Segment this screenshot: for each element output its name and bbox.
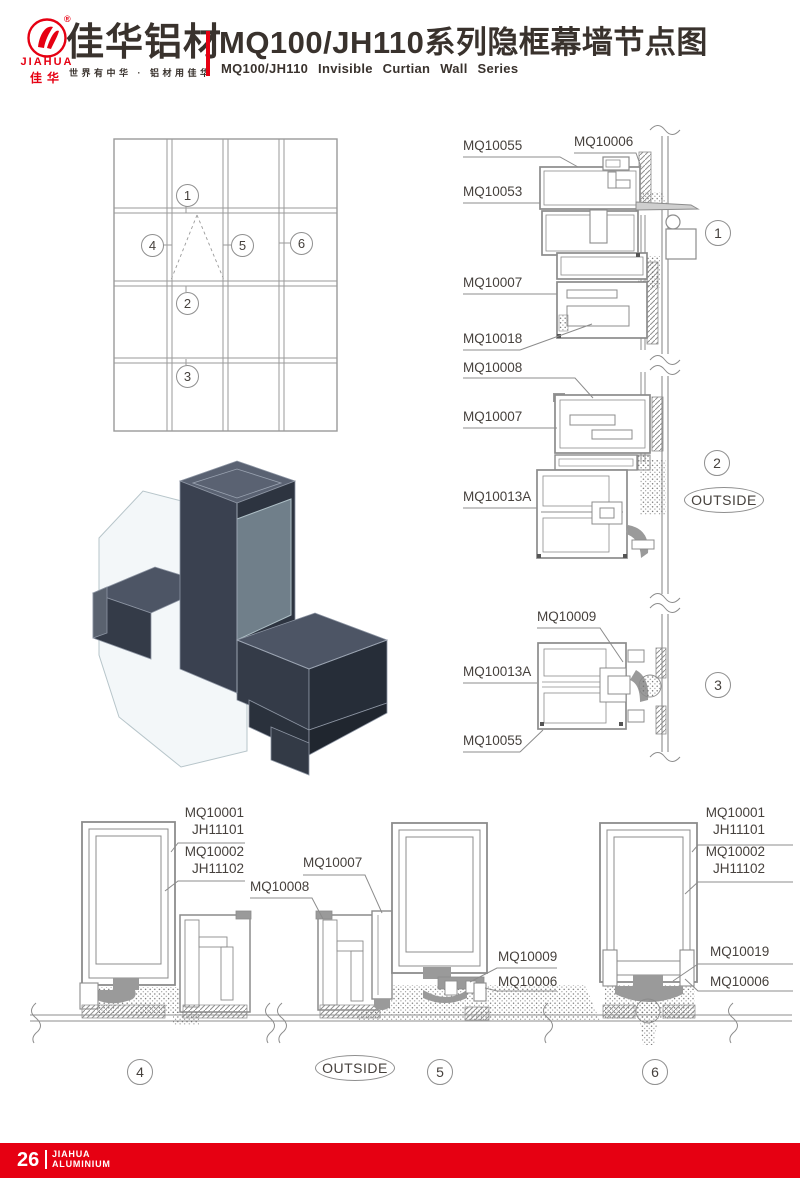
- section-callout-4-label: 4: [136, 1064, 144, 1080]
- page-subtitle: MQ100/JH110 Invisible Curtian Wall Serie…: [221, 61, 518, 76]
- outside-label-right: OUTSIDE: [684, 487, 764, 513]
- part-label: JH11101: [699, 823, 765, 838]
- grid-callout-4: 4: [141, 234, 164, 257]
- grid-callout-6: 6: [290, 232, 313, 255]
- footer-brand-line1: JIAHUA: [52, 1149, 90, 1159]
- section-callout-1: 1: [705, 220, 731, 246]
- 3d-profile-render: [85, 443, 405, 783]
- part-label: JH11102: [178, 862, 244, 877]
- part-label: MQ10007: [303, 856, 362, 871]
- section-callout-2: 2: [704, 450, 730, 476]
- horizontal-section-details: [25, 795, 800, 1095]
- grid-callout-3: 3: [176, 365, 199, 388]
- part-label: MQ10001: [178, 806, 244, 821]
- part-label: MQ10006: [574, 135, 633, 150]
- detail-3-drawing: [538, 643, 666, 734]
- part-label: MQ10002: [178, 845, 244, 860]
- grid-callout-6-label: 6: [298, 236, 305, 251]
- part-label: MQ10013A: [463, 490, 531, 505]
- part-label: MQ10009: [537, 610, 596, 625]
- right-transom: [237, 613, 387, 775]
- elevation-grid-diagram: [106, 134, 346, 434]
- part-label: MQ10013A: [463, 665, 531, 680]
- part-label: MQ10008: [250, 880, 309, 895]
- outside-text: OUTSIDE: [322, 1060, 388, 1076]
- footer-band: [0, 1143, 800, 1178]
- part-label: MQ10018: [463, 332, 522, 347]
- grid-callout-1-label: 1: [184, 188, 191, 203]
- detail-1-drawing: [540, 152, 698, 344]
- part-label: MQ10007: [463, 410, 522, 425]
- section-callout-2-label: 2: [713, 455, 721, 471]
- detail-2-drawing: [537, 393, 666, 558]
- part-label: JH11102: [699, 862, 765, 877]
- grid-callout-5: 5: [231, 234, 254, 257]
- grid-callout-4-label: 4: [149, 238, 156, 253]
- part-label: MQ10006: [498, 975, 557, 990]
- part-label: MQ10007: [463, 276, 522, 291]
- section-callout-6: 6: [642, 1059, 668, 1085]
- grid-callout-1: 1: [176, 184, 199, 207]
- part-label: MQ10009: [498, 950, 557, 965]
- part-label: MQ10053: [463, 185, 522, 200]
- part-label: MQ10001: [699, 806, 765, 821]
- section-callout-6-label: 6: [651, 1064, 659, 1080]
- part-label: MQ10055: [463, 734, 522, 749]
- part-label: MQ10008: [463, 361, 522, 376]
- center-glass-pane: [237, 499, 291, 640]
- section-callout-3: 3: [705, 672, 731, 698]
- section-callout-5-label: 5: [436, 1064, 444, 1080]
- grid-callout-5-label: 5: [239, 238, 246, 253]
- outside-label-bottom: OUTSIDE: [315, 1055, 395, 1081]
- header-divider: [206, 31, 210, 76]
- detail-6-drawing: [600, 823, 697, 1045]
- brand-tagline: 世界有中华 · 铝材用佳华: [69, 66, 213, 79]
- catalog-page: ® JIAHUA 佳华 佳华铝材 世界有中华 · 铝材用佳华 MQ100/JH1…: [0, 0, 800, 1200]
- part-label: JH11101: [178, 823, 244, 838]
- page-title: MQ100/JH110系列隐框幕墙节点图: [219, 27, 708, 58]
- brand-name: 佳华铝材: [66, 24, 222, 62]
- page-number: 26: [17, 1149, 39, 1172]
- grid-callout-3-label: 3: [184, 369, 191, 384]
- part-label: MQ10019: [710, 945, 769, 960]
- outside-text: OUTSIDE: [691, 492, 757, 508]
- part-label: MQ10002: [699, 845, 765, 860]
- grid-callout-2: 2: [176, 292, 199, 315]
- footer-brand-line2: ALUMINIUM: [52, 1159, 111, 1169]
- grid-callout-2-label: 2: [184, 296, 191, 311]
- part-label: MQ10006: [710, 975, 769, 990]
- section-callout-1-label: 1: [714, 225, 722, 241]
- opening-symbol: [171, 215, 224, 280]
- part-label: MQ10055: [463, 139, 522, 154]
- footer-divider: [45, 1150, 47, 1169]
- section-callout-4: 4: [127, 1059, 153, 1085]
- section-callout-3-label: 3: [714, 677, 722, 693]
- section-callout-5: 5: [427, 1059, 453, 1085]
- detail-5-drawing: [316, 823, 600, 1021]
